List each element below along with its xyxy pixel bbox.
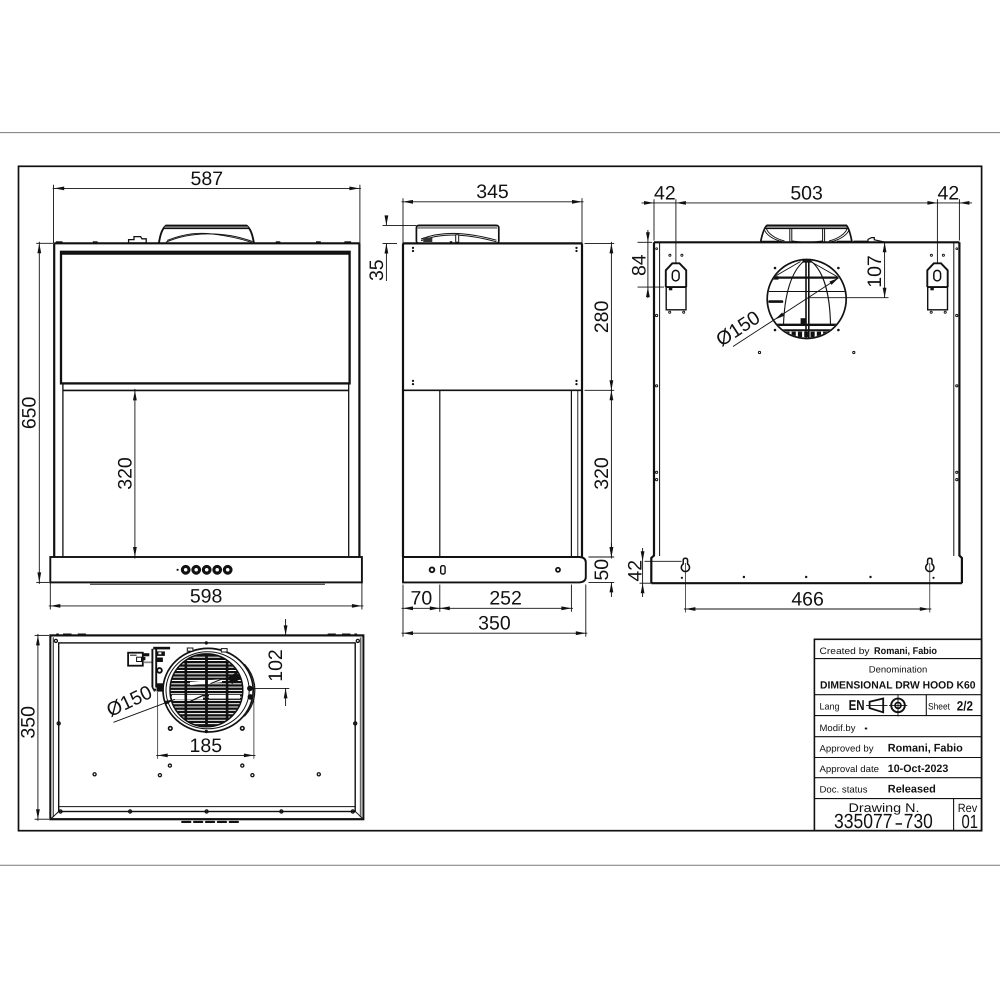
svg-text:280: 280 bbox=[591, 300, 613, 333]
svg-text:320: 320 bbox=[591, 457, 613, 490]
svg-text:Created by: Created by bbox=[820, 646, 870, 656]
svg-text:42: 42 bbox=[654, 182, 676, 204]
svg-text:Sheet: Sheet bbox=[928, 702, 950, 712]
svg-text:DIMENSIONAL DRW HOOD K60: DIMENSIONAL DRW HOOD K60 bbox=[820, 679, 976, 691]
svg-text:345: 345 bbox=[476, 181, 509, 203]
svg-text:01: 01 bbox=[962, 812, 979, 833]
svg-text:252: 252 bbox=[489, 588, 522, 610]
svg-text:Romani, Fabio: Romani, Fabio bbox=[874, 646, 937, 657]
svg-text:42: 42 bbox=[625, 560, 647, 582]
svg-text:2/2: 2/2 bbox=[957, 699, 973, 714]
svg-text:Denomination: Denomination bbox=[869, 665, 928, 675]
svg-text:Doc. status: Doc. status bbox=[820, 784, 868, 794]
svg-text:350: 350 bbox=[478, 613, 511, 635]
svg-text:598: 598 bbox=[190, 585, 223, 607]
svg-text:Approved by: Approved by bbox=[820, 744, 874, 754]
svg-text:102: 102 bbox=[265, 649, 287, 682]
svg-text:84: 84 bbox=[629, 254, 651, 276]
svg-text:Approval date: Approval date bbox=[820, 764, 880, 774]
svg-text:335077: 335077 bbox=[834, 810, 893, 833]
svg-text:Lang: Lang bbox=[820, 702, 840, 712]
svg-text:EN: EN bbox=[849, 698, 865, 714]
svg-text:42: 42 bbox=[938, 182, 960, 204]
svg-text:730: 730 bbox=[904, 810, 933, 833]
svg-text:Romani, Fabio: Romani, Fabio bbox=[888, 743, 963, 755]
svg-text:503: 503 bbox=[790, 182, 823, 204]
svg-text:35: 35 bbox=[366, 259, 388, 281]
svg-text:320: 320 bbox=[114, 457, 136, 490]
svg-text:70: 70 bbox=[411, 588, 433, 610]
svg-text:587: 587 bbox=[191, 168, 224, 190]
svg-text:185: 185 bbox=[190, 735, 223, 757]
svg-text:10-Oct-2023: 10-Oct-2023 bbox=[888, 763, 949, 775]
svg-text:350: 350 bbox=[17, 706, 39, 739]
svg-text:Released: Released bbox=[888, 783, 936, 795]
svg-text:Modif.by: Modif.by bbox=[820, 723, 856, 733]
svg-text:107: 107 bbox=[864, 255, 886, 288]
svg-text:650: 650 bbox=[19, 396, 41, 429]
svg-text:50: 50 bbox=[591, 559, 613, 581]
svg-text:466: 466 bbox=[791, 588, 824, 610]
